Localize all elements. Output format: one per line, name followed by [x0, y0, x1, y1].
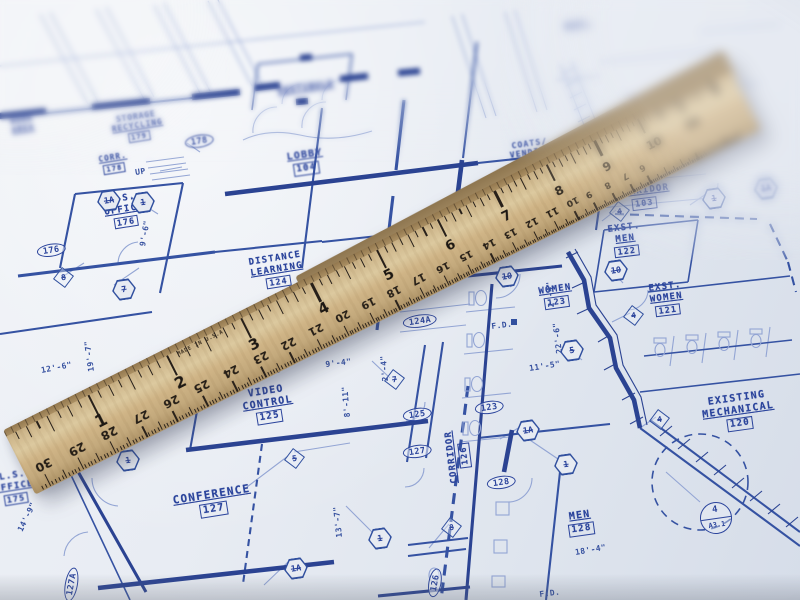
room-label: LOBBY104	[286, 147, 325, 178]
inch-tick	[570, 152, 576, 163]
inch-tick	[671, 102, 674, 107]
cm-tick	[287, 362, 290, 366]
cm-tick	[408, 302, 410, 306]
cm-tick	[301, 355, 304, 359]
cm-tick	[344, 334, 347, 338]
inch-tick	[77, 400, 81, 407]
cm-tick	[224, 394, 227, 398]
cm-tick	[403, 304, 405, 308]
cm-number: 13	[502, 225, 519, 241]
cm-number: 17	[409, 270, 427, 287]
cm-tick	[258, 376, 261, 380]
cm-number: 19	[359, 294, 378, 312]
cm-tick	[395, 308, 397, 312]
inch-tick	[539, 168, 543, 174]
cm-tick	[116, 448, 119, 452]
inch-tick	[558, 158, 563, 166]
inch-tick	[147, 365, 153, 376]
cm-number: 29	[66, 439, 88, 459]
inch-tick	[258, 309, 264, 319]
cm-number: 27	[130, 407, 151, 427]
cm-tick	[188, 412, 191, 416]
cm-tick	[261, 375, 264, 379]
cm-tick	[253, 379, 256, 383]
cm-tick	[212, 400, 215, 404]
inch-tick	[452, 212, 457, 221]
cm-tick	[78, 467, 81, 471]
cm-tick	[41, 485, 44, 489]
cm-tick	[370, 321, 373, 325]
cm-tick	[138, 436, 141, 440]
inch-tick	[430, 223, 434, 229]
inch-tick	[157, 360, 161, 367]
inch-tick	[487, 194, 491, 200]
inch-tick	[327, 275, 333, 285]
inch-tick	[399, 238, 403, 244]
cm-number: 9	[584, 188, 594, 200]
keynote-hex-marker: 1A	[283, 556, 310, 580]
inch-tick	[352, 262, 356, 269]
inch-number: 2	[171, 371, 189, 393]
inch-tick	[698, 88, 701, 93]
cm-tick	[393, 309, 395, 313]
inch-tick	[319, 279, 323, 286]
keynote-hex-marker: 1	[130, 190, 157, 214]
cm-tick	[142, 435, 145, 439]
cm-tick	[197, 407, 200, 411]
cm-tick	[91, 460, 94, 464]
cm-tick	[367, 322, 370, 326]
cm-tick	[151, 430, 154, 434]
cm-tick	[166, 422, 169, 426]
cm-tick	[244, 384, 247, 388]
cm-tick	[405, 303, 407, 307]
cm-tick	[303, 354, 306, 358]
inch-tick	[647, 114, 652, 122]
cm-number: 20	[333, 307, 352, 325]
keynote-hex-marker: 7	[111, 277, 138, 301]
blueprint-photo: WORKAREASTORAGERECYCLING179CORR.178L.S.O…	[0, 0, 800, 600]
inch-tick	[662, 106, 665, 111]
cm-tick	[154, 429, 157, 433]
inch-tick	[657, 109, 663, 119]
inch-tick	[285, 296, 289, 303]
cm-tick	[107, 452, 110, 456]
inch-tick	[384, 246, 388, 252]
inch-tick	[407, 234, 414, 247]
inch-tick	[689, 92, 692, 97]
room-label: WOMEN123	[538, 282, 574, 310]
inch-tick	[392, 242, 397, 251]
cm-tick	[317, 347, 320, 351]
cm-tick	[169, 421, 172, 425]
cm-number: 7	[620, 170, 630, 182]
cm-tick	[172, 419, 175, 423]
inch-tick	[250, 314, 254, 321]
cm-tick	[238, 387, 241, 391]
cm-number: 8	[602, 179, 612, 191]
cm-tick	[182, 415, 185, 419]
inch-tick	[533, 171, 538, 179]
cm-number: 25	[191, 376, 212, 396]
inch-number: 9	[600, 158, 614, 174]
cm-tick	[339, 336, 342, 340]
cm-tick	[110, 451, 113, 455]
cm-number: 21	[306, 320, 325, 338]
cm-tick	[87, 462, 90, 466]
cm-number: 22	[278, 334, 298, 353]
cm-tick	[71, 470, 74, 474]
inch-tick	[344, 266, 351, 279]
inch-tick	[232, 323, 236, 330]
inch-tick	[459, 208, 463, 214]
inch-tick	[621, 127, 624, 132]
inch-tick	[552, 162, 556, 168]
inch-tick	[360, 258, 366, 268]
cm-tick	[226, 392, 229, 396]
inch-tick	[527, 174, 531, 180]
cm-tick	[74, 469, 77, 473]
inch-tick	[26, 426, 32, 437]
cm-tick	[325, 343, 328, 347]
inch-tick	[582, 146, 587, 154]
cm-tick	[390, 310, 392, 314]
cm-tick	[209, 401, 212, 405]
keynote-hex-marker: 1	[701, 186, 728, 210]
inch-tick	[616, 129, 622, 140]
cm-tick	[341, 335, 344, 339]
cm-tick	[298, 357, 301, 361]
inch-tick	[444, 216, 448, 222]
cm-tick	[185, 413, 188, 417]
inch-tick	[15, 432, 20, 440]
cm-tick	[362, 324, 365, 328]
cm-number: 24	[221, 362, 242, 382]
keynote-hex-marker: 10	[494, 264, 521, 288]
cm-tick	[247, 382, 250, 386]
cm-tick	[328, 342, 331, 346]
cm-tick	[132, 440, 135, 444]
inch-tick	[507, 184, 512, 193]
keynote-hex-marker: 1	[367, 526, 394, 550]
inch-number: 4	[316, 299, 333, 319]
inch-tick	[57, 411, 61, 418]
inch-tick	[514, 181, 518, 187]
cm-tick	[354, 328, 357, 332]
cm-number: 12	[523, 214, 540, 230]
cm-tick	[163, 424, 166, 428]
inch-tick	[415, 231, 419, 237]
inch-tick	[576, 149, 580, 155]
cm-tick	[119, 446, 122, 450]
cm-number: 30	[33, 454, 55, 475]
cm-tick	[194, 409, 197, 413]
keynote-hex-marker: 10	[603, 258, 630, 282]
inch-tick	[108, 385, 114, 396]
inch-tick	[500, 188, 504, 194]
cm-tick	[94, 459, 97, 463]
inch-tick	[627, 124, 632, 132]
inch-number: 7	[499, 208, 514, 225]
inch-tick	[642, 116, 645, 121]
cm-tick	[215, 398, 218, 402]
cm-tick	[357, 327, 360, 331]
cm-tick	[428, 292, 430, 296]
cm-tick	[123, 444, 126, 448]
room-label: VIDEOCONTROL125	[240, 382, 296, 427]
keynote-hex-marker: 1A	[753, 176, 780, 200]
cm-tick	[336, 338, 339, 342]
inch-tick	[694, 90, 700, 100]
cm-tick	[256, 378, 259, 382]
inch-tick	[118, 380, 122, 387]
inch-tick	[276, 300, 284, 314]
cm-tick	[267, 372, 270, 376]
cm-tick	[309, 351, 312, 355]
inch-tick	[267, 305, 271, 312]
cm-tick	[200, 406, 203, 410]
room-label: EXST.MEN122	[607, 221, 644, 259]
inch-tick	[98, 390, 102, 397]
cm-tick	[68, 472, 71, 476]
inch-tick	[137, 370, 141, 377]
cm-tick	[284, 364, 287, 368]
cm-tick	[418, 297, 420, 301]
inch-tick	[605, 135, 610, 143]
inch-tick	[652, 111, 655, 116]
inch-tick	[67, 405, 73, 416]
inch-tick	[667, 104, 671, 111]
cm-number: 11	[544, 204, 561, 220]
dimension-text: UP	[135, 166, 147, 177]
cm-tick	[157, 427, 160, 431]
inch-tick	[335, 270, 339, 277]
cm-tick	[104, 454, 107, 458]
cm-tick	[432, 289, 434, 293]
cm-tick	[273, 369, 276, 373]
cm-tick	[415, 298, 417, 302]
inch-tick	[632, 121, 635, 126]
inch-tick	[376, 250, 387, 269]
cm-tick	[241, 385, 244, 389]
cm-tick	[270, 371, 273, 375]
cm-tick	[51, 480, 54, 484]
inch-tick	[437, 219, 448, 237]
inch-tick	[681, 97, 684, 102]
cm-tick	[61, 475, 64, 479]
cm-tick	[203, 404, 206, 408]
inch-tick	[368, 254, 372, 260]
inch-tick	[310, 283, 321, 303]
inch-tick	[702, 86, 706, 93]
cm-tick	[380, 315, 383, 319]
inch-number: 6	[443, 236, 459, 255]
keynote-hex-marker: 1A	[96, 188, 123, 212]
inch-number: 11	[683, 114, 702, 132]
cm-tick	[413, 299, 415, 303]
inch-tick	[466, 205, 473, 217]
cm-tick	[218, 397, 221, 401]
keynote-hex-marker: 1	[553, 452, 580, 476]
cm-tick	[383, 314, 386, 318]
cm-number: 16	[434, 259, 452, 275]
cm-tick	[179, 416, 182, 420]
cm-tick	[45, 483, 48, 487]
inch-tick	[473, 201, 477, 207]
inch-tick	[36, 421, 41, 429]
inch-tick	[293, 292, 299, 302]
cm-tick	[135, 438, 138, 442]
inch-tick	[520, 178, 527, 190]
cm-tick	[352, 330, 355, 334]
cm-tick	[148, 432, 151, 436]
room-label: MEN128	[566, 508, 596, 538]
cm-tick	[314, 348, 317, 352]
inch-number: 8	[552, 182, 567, 199]
cm-tick	[275, 368, 278, 372]
inch-tick	[610, 132, 613, 137]
cm-tick	[229, 391, 232, 395]
cm-tick	[58, 477, 61, 481]
cm-number: 6	[637, 161, 647, 173]
inch-tick	[706, 84, 709, 89]
cm-tick	[430, 291, 432, 295]
room-label: EXST.WOMEN121	[648, 280, 685, 318]
inch-tick	[599, 138, 602, 143]
inch-number: 10	[644, 133, 664, 153]
cm-tick	[440, 286, 442, 290]
inch-tick	[480, 198, 485, 207]
cm-tick	[84, 464, 87, 468]
inch-tick	[422, 227, 427, 236]
keynote-hex-marker: 1A	[515, 418, 542, 442]
cm-number: 14	[480, 236, 497, 252]
inch-tick	[47, 416, 55, 431]
cm-tick	[312, 350, 315, 354]
inch-tick	[127, 375, 135, 390]
inch-tick	[588, 144, 592, 150]
inch-tick	[685, 95, 689, 102]
cm-tick	[55, 478, 58, 482]
cm-tick	[126, 443, 129, 447]
cm-tick	[289, 361, 292, 365]
inch-tick	[564, 155, 568, 161]
room-label: WORKAREA	[10, 114, 35, 135]
cm-tick	[420, 295, 422, 299]
inch-tick	[302, 287, 306, 294]
cm-tick	[232, 389, 235, 393]
cm-tick	[281, 365, 284, 369]
cm-number: 10	[564, 194, 580, 210]
cm-number: 26	[161, 392, 182, 412]
cm-tick	[330, 340, 333, 344]
cm-tick	[100, 456, 103, 460]
cm-tick	[378, 317, 381, 321]
cm-tick	[388, 312, 390, 316]
cm-number: 15	[457, 247, 474, 263]
inch-tick	[711, 81, 719, 95]
cm-tick	[365, 323, 368, 327]
